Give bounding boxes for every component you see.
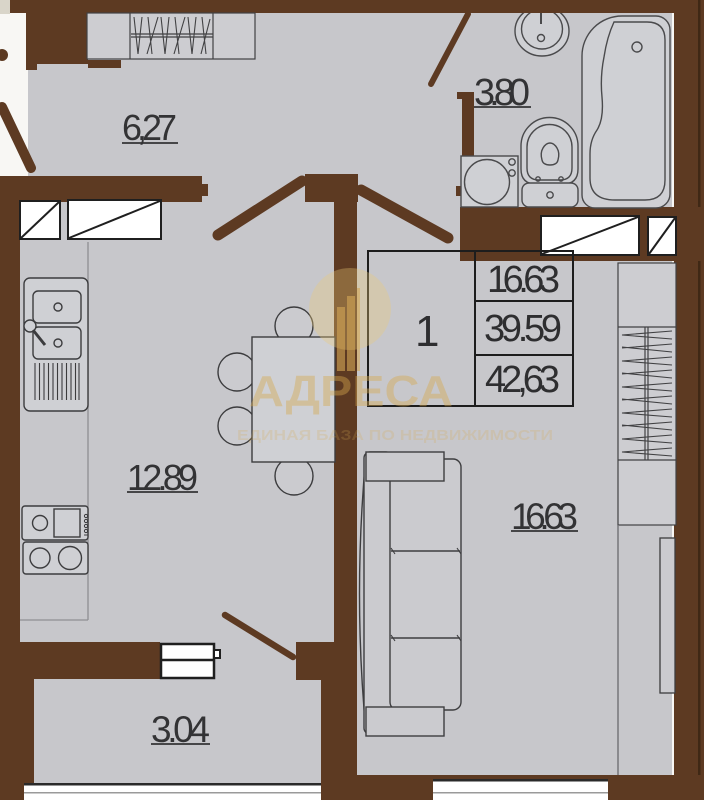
svg-text:16.63: 16.63 <box>487 259 560 301</box>
svg-text:42,63: 42,63 <box>485 359 560 401</box>
svg-text:АДРЕСА: АДРЕСА <box>249 367 453 416</box>
svg-text:6,27: 6,27 <box>122 107 177 148</box>
svg-text:39.59: 39.59 <box>484 308 562 350</box>
svg-text:1: 1 <box>415 307 439 356</box>
svg-text:ЕДИНАЯ БАЗА ПО НЕДВИЖИМОСТИ: ЕДИНАЯ БАЗА ПО НЕДВИЖИМОСТИ <box>237 427 553 444</box>
